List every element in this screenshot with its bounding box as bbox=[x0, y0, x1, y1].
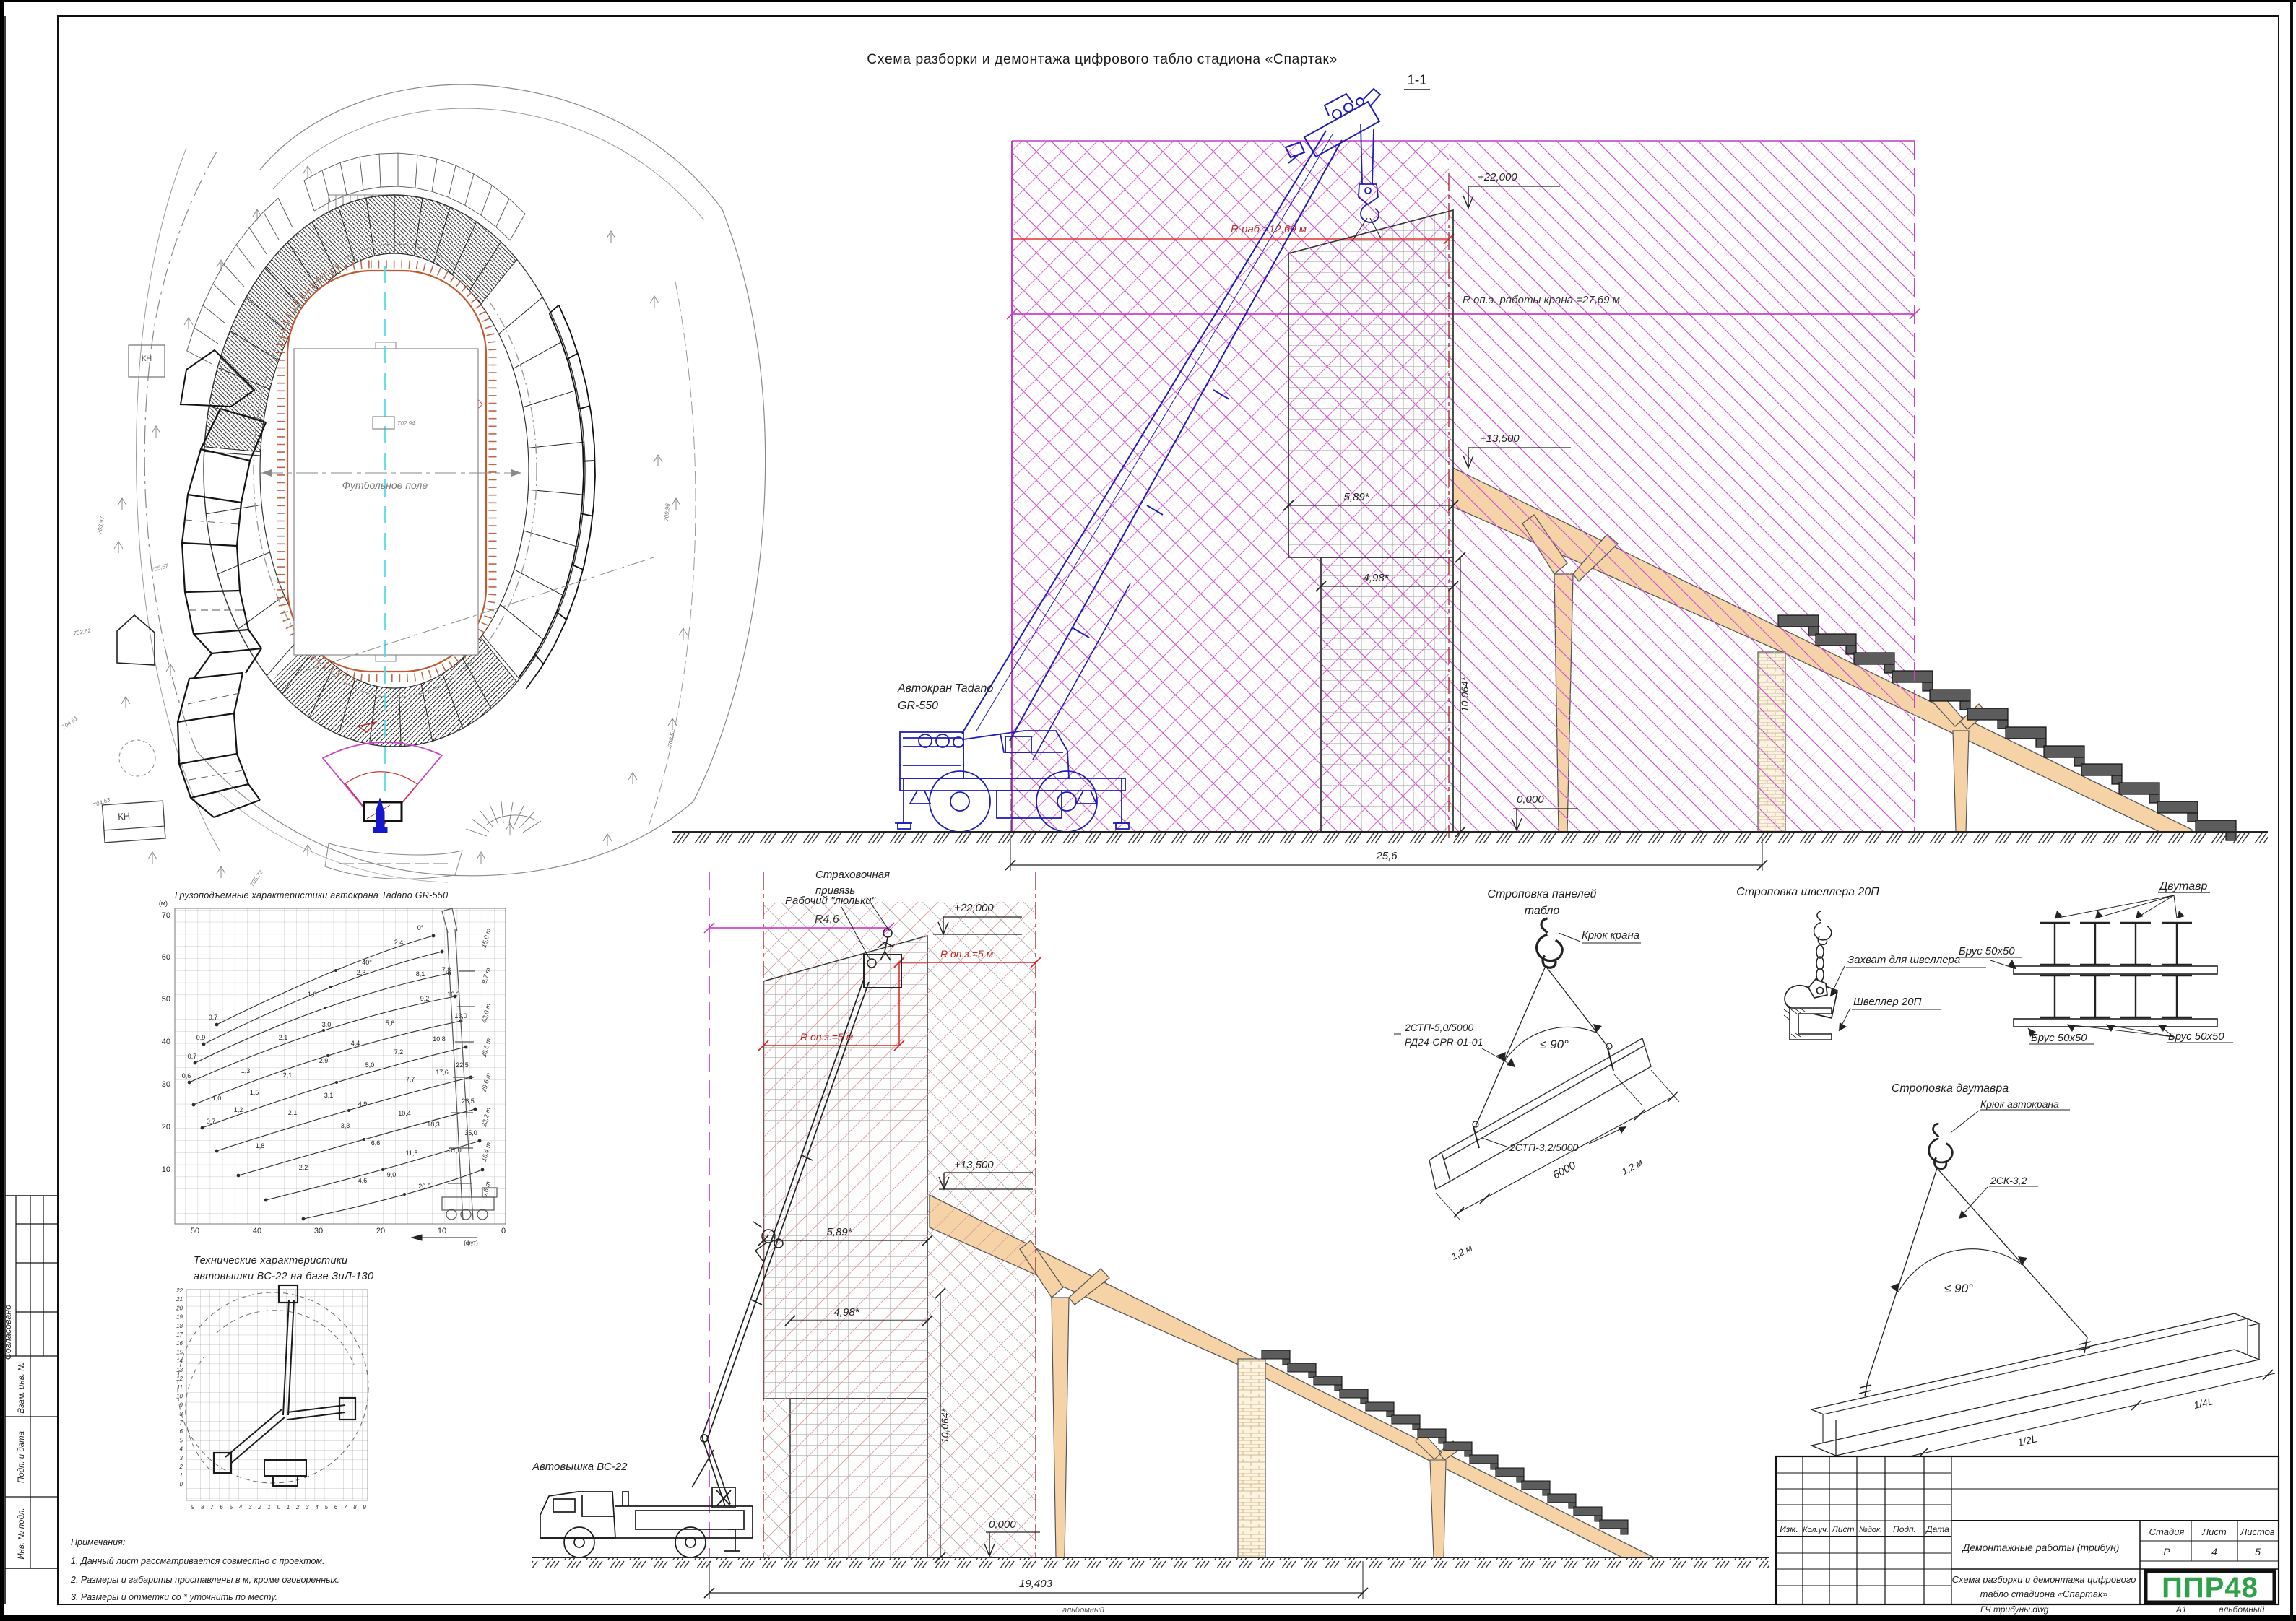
svg-text:3,3: 3,3 bbox=[341, 1122, 350, 1129]
svg-text:9: 9 bbox=[191, 1504, 195, 1511]
svg-text:14: 14 bbox=[176, 1358, 183, 1365]
svg-text:№док.: №док. bbox=[1859, 1526, 1882, 1534]
svg-text:3: 3 bbox=[306, 1504, 309, 1511]
svg-text:Р: Р bbox=[2163, 1546, 2170, 1557]
svg-text:17,6: 17,6 bbox=[436, 1069, 449, 1076]
svg-text:7,7: 7,7 bbox=[406, 1076, 415, 1083]
svg-text:40: 40 bbox=[253, 1227, 261, 1235]
svg-text:5: 5 bbox=[325, 1504, 329, 1511]
svg-text:GR-550: GR-550 bbox=[898, 700, 938, 712]
svg-text:Подп. и дата: Подп. и дата bbox=[17, 1431, 26, 1483]
svg-text:11,5: 11,5 bbox=[406, 1150, 418, 1157]
svg-text:30: 30 bbox=[314, 1227, 323, 1235]
svg-text:+13,500: +13,500 bbox=[1480, 433, 1520, 445]
svg-text:1: 1 bbox=[180, 1472, 183, 1479]
svg-text:17: 17 bbox=[176, 1331, 183, 1338]
svg-text:5,0: 5,0 bbox=[365, 1061, 375, 1069]
svg-text:Футбольное поле: Футбольное поле bbox=[342, 479, 428, 491]
svg-text:50: 50 bbox=[162, 995, 170, 1004]
svg-text:30: 30 bbox=[162, 1080, 170, 1089]
svg-text:2,9: 2,9 bbox=[319, 1057, 329, 1064]
svg-text:5,89*: 5,89* bbox=[1343, 491, 1369, 503]
svg-text:3: 3 bbox=[180, 1455, 183, 1461]
svg-text:2: 2 bbox=[295, 1504, 300, 1511]
svg-text:ППР48: ППР48 bbox=[2162, 1572, 2258, 1604]
svg-text:10,8: 10,8 bbox=[433, 1035, 446, 1043]
svg-text:5: 5 bbox=[2255, 1546, 2261, 1557]
svg-text:9,0: 9,0 bbox=[387, 1171, 397, 1178]
svg-text:2,3: 2,3 bbox=[357, 969, 366, 976]
svg-text:2СК-3,2: 2СК-3,2 bbox=[1990, 1175, 2027, 1186]
svg-text:Автовышка ВС-22: Автовышка ВС-22 bbox=[532, 1461, 628, 1473]
svg-text:0,7: 0,7 bbox=[188, 1053, 197, 1060]
svg-text:5: 5 bbox=[230, 1504, 233, 1511]
svg-text:1,0: 1,0 bbox=[212, 1095, 222, 1102]
svg-text:20: 20 bbox=[162, 1123, 170, 1131]
svg-text:1: 1 bbox=[287, 1504, 290, 1511]
svg-text:4,4: 4,4 bbox=[351, 1040, 360, 1047]
svg-text:1,6: 1,6 bbox=[308, 991, 317, 998]
svg-text:702.94: 702.94 bbox=[397, 420, 415, 427]
svg-text:R оп.э. работы крана =27,69 м: R оп.э. работы крана =27,69 м bbox=[1463, 294, 1620, 306]
svg-text:Крюк крана: Крюк крана bbox=[1582, 929, 1639, 942]
svg-text:R4,6: R4,6 bbox=[815, 913, 839, 926]
svg-text:50: 50 bbox=[191, 1227, 199, 1235]
svg-text:2,1: 2,1 bbox=[279, 1034, 288, 1041]
svg-text:1,8: 1,8 bbox=[256, 1142, 265, 1150]
svg-text:1,3: 1,3 bbox=[241, 1067, 251, 1074]
svg-text:5: 5 bbox=[180, 1437, 183, 1443]
svg-text:ГЧ трибуны.dwg: ГЧ трибуны.dwg bbox=[1980, 1604, 2049, 1615]
svg-text:4: 4 bbox=[315, 1504, 319, 1511]
svg-text:9: 9 bbox=[363, 1504, 366, 1511]
svg-text:0: 0 bbox=[501, 1227, 506, 1235]
svg-text:8: 8 bbox=[201, 1504, 204, 1511]
svg-text:Швеллер 20П: Швеллер 20П bbox=[1853, 996, 1922, 1008]
svg-text:+22,000: +22,000 bbox=[1478, 171, 1517, 183]
svg-text:2: 2 bbox=[179, 1464, 183, 1470]
svg-text:2,2: 2,2 bbox=[299, 1164, 308, 1171]
svg-text:8,1: 8,1 bbox=[416, 970, 425, 978]
svg-text:+13,500: +13,500 bbox=[954, 1159, 994, 1171]
svg-text:Взам. инв. №: Взам. инв. № bbox=[17, 1362, 26, 1414]
svg-text:(фут): (фут) bbox=[464, 1240, 478, 1246]
svg-text:7: 7 bbox=[180, 1420, 183, 1426]
svg-text:3: 3 bbox=[248, 1504, 252, 1511]
svg-text:Листов: Листов bbox=[2240, 1526, 2275, 1537]
svg-text:Строповка двутавра: Строповка двутавра bbox=[1892, 1082, 2009, 1095]
svg-text:10,4: 10,4 bbox=[398, 1110, 411, 1117]
svg-text:(м): (м) bbox=[159, 900, 168, 907]
svg-text:4: 4 bbox=[180, 1446, 183, 1453]
svg-text:2. Размеры и габариты проставл: 2. Размеры и габариты проставлены в м, к… bbox=[70, 1575, 339, 1585]
svg-text:Брус 50х50: Брус 50х50 bbox=[2031, 1032, 2087, 1044]
svg-text:0,9: 0,9 bbox=[196, 1034, 206, 1041]
svg-text:6: 6 bbox=[180, 1428, 183, 1435]
svg-text:4,9: 4,9 bbox=[358, 1100, 368, 1108]
svg-text:22,5: 22,5 bbox=[456, 1061, 469, 1069]
svg-text:8: 8 bbox=[353, 1504, 357, 1511]
svg-text:21: 21 bbox=[176, 1296, 183, 1303]
svg-text:18,3: 18,3 bbox=[427, 1121, 440, 1128]
svg-text:+22,000: +22,000 bbox=[954, 902, 994, 914]
svg-text:Технические характеристики: Технические характеристики bbox=[194, 1255, 347, 1266]
svg-text:0°: 0° bbox=[417, 924, 424, 931]
svg-text:Брус 50х50: Брус 50х50 bbox=[2168, 1030, 2224, 1043]
svg-text:7,2: 7,2 bbox=[394, 1048, 404, 1056]
svg-text:КН: КН bbox=[142, 355, 152, 363]
svg-text:3,0: 3,0 bbox=[322, 1021, 332, 1028]
svg-text:6: 6 bbox=[334, 1504, 338, 1511]
svg-text:15: 15 bbox=[176, 1349, 183, 1355]
svg-text:Стадия: Стадия bbox=[2149, 1526, 2185, 1537]
svg-text:5,89*: 5,89* bbox=[826, 1226, 852, 1238]
svg-text:4,6: 4,6 bbox=[358, 1177, 368, 1184]
svg-text:5,6: 5,6 bbox=[386, 1020, 395, 1027]
svg-text:0,7: 0,7 bbox=[209, 1014, 218, 1021]
svg-text:Схема разборки и демонтажа циф: Схема разборки и демонтажа цифрового bbox=[1952, 1574, 2136, 1585]
svg-text:Брус 50х50: Брус 50х50 bbox=[1959, 945, 2015, 957]
svg-text:18: 18 bbox=[176, 1323, 183, 1329]
svg-text:1-1: 1-1 bbox=[1407, 73, 1426, 88]
svg-text:табло: табло bbox=[1525, 905, 1560, 917]
svg-text:3. Размеры и отметки со * уточ: 3. Размеры и отметки со * уточнить по ме… bbox=[71, 1592, 277, 1602]
svg-text:20,5: 20,5 bbox=[418, 1183, 431, 1190]
svg-text:70: 70 bbox=[162, 911, 170, 920]
svg-text:2СТП-3,2/5000: 2СТП-3,2/5000 bbox=[1509, 1142, 1579, 1153]
svg-text:Схема разборки и демонтажа циф: Схема разборки и демонтажа цифрового таб… bbox=[867, 51, 1338, 67]
svg-text:1: 1 bbox=[267, 1504, 270, 1511]
svg-text:4,98*: 4,98* bbox=[833, 1306, 859, 1318]
svg-text:9,2: 9,2 bbox=[420, 995, 430, 1002]
svg-text:Лист: Лист bbox=[2201, 1526, 2227, 1537]
svg-text:4: 4 bbox=[239, 1504, 243, 1511]
svg-text:0,7: 0,7 bbox=[207, 1118, 216, 1125]
svg-text:КН: КН bbox=[118, 810, 131, 822]
svg-text:Дата: Дата bbox=[1925, 1524, 1949, 1534]
svg-text:0: 0 bbox=[277, 1504, 281, 1511]
svg-text:Лист: Лист bbox=[1832, 1524, 1855, 1534]
svg-text:Страховочная: Страховочная bbox=[815, 869, 890, 881]
svg-text:10: 10 bbox=[162, 1165, 170, 1174]
svg-text:0,000: 0,000 bbox=[1517, 794, 1544, 806]
svg-text:Автокран Tadano: Автокран Tadano bbox=[897, 682, 993, 695]
svg-text:РД24-CPR-01-01: РД24-CPR-01-01 bbox=[1405, 1036, 1483, 1048]
svg-text:альбомный: альбомный bbox=[2219, 1604, 2265, 1615]
svg-text:4: 4 bbox=[2211, 1546, 2217, 1557]
svg-text:R оп.з.=5 м: R оп.з.=5 м bbox=[940, 948, 994, 960]
svg-text:7: 7 bbox=[344, 1504, 347, 1511]
svg-text:≤ 90°: ≤ 90° bbox=[1944, 1282, 1973, 1295]
svg-text:20: 20 bbox=[376, 1227, 385, 1235]
svg-text:Инв. № подл.: Инв. № подл. bbox=[17, 1508, 26, 1559]
svg-text:Подп.: Подп. bbox=[1893, 1524, 1916, 1534]
svg-text:10: 10 bbox=[438, 1227, 446, 1235]
svg-text:≤ 90°: ≤ 90° bbox=[1540, 1038, 1569, 1051]
svg-text:10: 10 bbox=[176, 1393, 183, 1399]
svg-text:4,98*: 4,98* bbox=[1363, 572, 1389, 584]
svg-text:3,1: 3,1 bbox=[324, 1092, 334, 1099]
svg-text:табло стадиона «Спартак»: табло стадиона «Спартак» bbox=[1980, 1589, 2108, 1599]
svg-text:Согласовано: Согласовано bbox=[3, 1305, 13, 1360]
svg-text:Строповка швеллера 20П: Строповка швеллера 20П bbox=[1736, 886, 1879, 898]
svg-text:40°: 40° bbox=[362, 959, 372, 966]
svg-text:6: 6 bbox=[220, 1504, 223, 1511]
svg-text:40: 40 bbox=[162, 1038, 170, 1046]
svg-text:Изм.: Изм. bbox=[1780, 1524, 1798, 1534]
svg-text:Кол.уч.: Кол.уч. bbox=[1803, 1526, 1829, 1534]
svg-text:10,064*: 10,064* bbox=[1459, 677, 1470, 712]
svg-text:1,5: 1,5 bbox=[250, 1089, 259, 1096]
svg-text:Двутавр: Двутавр bbox=[2158, 880, 2207, 892]
svg-text:2,4: 2,4 bbox=[394, 939, 404, 946]
svg-text:16: 16 bbox=[176, 1340, 183, 1347]
svg-text:19,403: 19,403 bbox=[1019, 1578, 1053, 1590]
svg-text:13: 13 bbox=[176, 1367, 183, 1373]
svg-text:Крюк автокрана: Крюк автокрана bbox=[1980, 1098, 2059, 1110]
svg-text:Строповка панелей: Строповка панелей bbox=[1487, 888, 1596, 900]
svg-text:12: 12 bbox=[176, 1376, 183, 1382]
svg-text:0,6: 0,6 bbox=[182, 1072, 191, 1079]
svg-text:Захват для швеллера: Захват для швеллера bbox=[1847, 954, 1960, 966]
svg-text:альбомный: альбомный bbox=[1062, 1606, 1104, 1615]
svg-text:автовышки ВС-22 на базе ЗиЛ-13: автовышки ВС-22 на базе ЗиЛ-130 bbox=[194, 1271, 373, 1282]
svg-text:6,6: 6,6 bbox=[371, 1139, 381, 1147]
svg-text:2,1: 2,1 bbox=[283, 1072, 293, 1079]
svg-text:0,000: 0,000 bbox=[989, 1518, 1016, 1531]
svg-text:2,1: 2,1 bbox=[288, 1109, 298, 1116]
svg-text:2: 2 bbox=[257, 1504, 261, 1511]
svg-text:19: 19 bbox=[176, 1314, 183, 1321]
svg-text:Демонтажные работы (трибун): Демонтажные работы (трибун) bbox=[1962, 1542, 2120, 1553]
svg-text:Рабочий "люльки": Рабочий "люльки" bbox=[785, 895, 876, 907]
svg-text:0: 0 bbox=[180, 1481, 183, 1487]
svg-text:22: 22 bbox=[176, 1287, 183, 1294]
svg-text:60: 60 bbox=[162, 953, 170, 962]
svg-text:25,6: 25,6 bbox=[1375, 850, 1398, 862]
svg-text:Примечания:: Примечания: bbox=[71, 1537, 125, 1547]
svg-text:35,0: 35,0 bbox=[464, 1129, 477, 1137]
svg-text:2СТП-5,0/5000: 2СТП-5,0/5000 bbox=[1404, 1022, 1474, 1033]
svg-text:7: 7 bbox=[210, 1504, 214, 1511]
svg-text:20: 20 bbox=[176, 1305, 183, 1311]
svg-text:А1: А1 bbox=[2175, 1604, 2187, 1615]
svg-text:Грузоподъемные характеристики: Грузоподъемные характеристики автокрана … bbox=[175, 890, 448, 900]
svg-text:1. Данный лист рассматривается: 1. Данный лист рассматривается совместно… bbox=[71, 1556, 325, 1566]
svg-text:28,5: 28,5 bbox=[462, 1098, 475, 1105]
svg-text:10,064*: 10,064* bbox=[939, 1408, 950, 1443]
svg-text:1,2: 1,2 bbox=[234, 1106, 243, 1113]
svg-text:10,3: 10,3 bbox=[447, 991, 460, 998]
